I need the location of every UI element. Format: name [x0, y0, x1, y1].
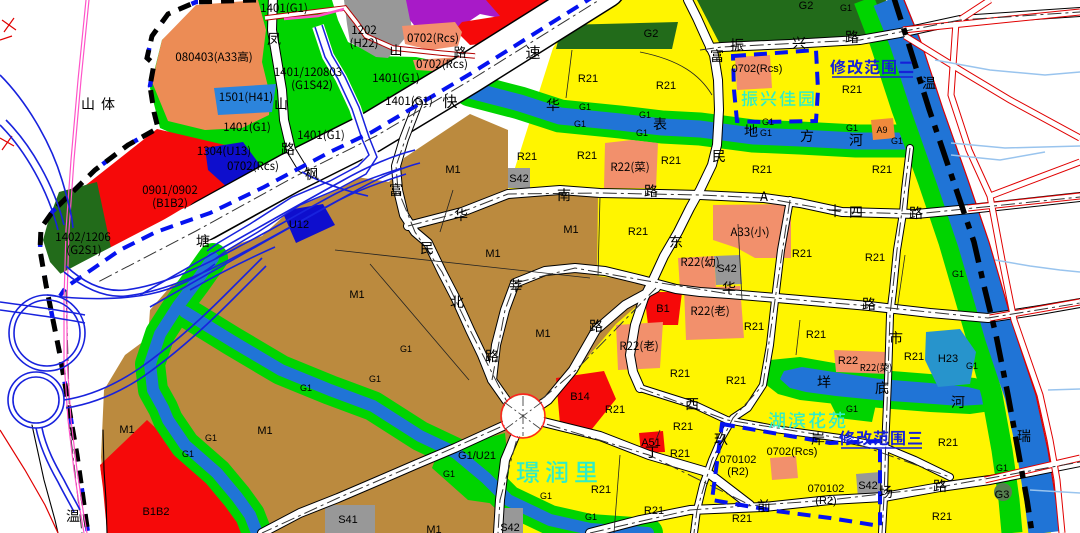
- svg-text:G2: G2: [644, 28, 659, 40]
- svg-text:R21: R21: [670, 368, 690, 380]
- svg-text:H23: H23: [938, 353, 958, 365]
- svg-text:0702(Rcs): 0702(Rcs): [767, 446, 818, 458]
- svg-text:R21: R21: [591, 484, 611, 496]
- svg-text:G1/U21: G1/U21: [458, 450, 496, 462]
- svg-text:M1: M1: [257, 425, 272, 437]
- svg-text:R21: R21: [904, 351, 924, 363]
- svg-text:G1: G1: [205, 433, 217, 443]
- svg-text:R21: R21: [628, 226, 648, 238]
- svg-text:R21: R21: [872, 164, 892, 176]
- svg-text:R21: R21: [578, 73, 598, 85]
- svg-text:0702(Rcs): 0702(Rcs): [732, 63, 783, 75]
- svg-text:070102: 070102: [720, 454, 757, 466]
- svg-text:S42: S42: [500, 522, 520, 533]
- svg-text:R21: R21: [577, 150, 597, 162]
- svg-text:(R2): (R2): [815, 495, 836, 507]
- svg-text:R21: R21: [644, 505, 664, 517]
- svg-text:R21: R21: [792, 248, 812, 260]
- svg-text:B1: B1: [656, 303, 669, 315]
- svg-text:G1: G1: [369, 374, 381, 384]
- svg-text:R21: R21: [932, 511, 952, 523]
- svg-text:G1: G1: [966, 361, 978, 371]
- svg-text:B1B2: B1B2: [143, 506, 170, 518]
- svg-text:G1: G1: [846, 123, 858, 133]
- svg-text:G1: G1: [846, 404, 858, 414]
- svg-text:R21: R21: [726, 375, 746, 387]
- svg-text:R21: R21: [673, 421, 693, 433]
- svg-text:(R2): (R2): [727, 466, 748, 478]
- svg-text:M1: M1: [535, 328, 550, 340]
- svg-text:U12: U12: [289, 219, 309, 231]
- svg-text:G1: G1: [540, 491, 552, 501]
- svg-text:R21: R21: [938, 437, 958, 449]
- svg-text:S41: S41: [338, 514, 358, 526]
- svg-text:M1: M1: [119, 424, 134, 436]
- svg-text:G1: G1: [400, 344, 412, 354]
- svg-text:R21: R21: [605, 404, 625, 416]
- svg-text:G1: G1: [639, 110, 651, 120]
- svg-text:G1: G1: [300, 383, 312, 393]
- svg-text:070102: 070102: [808, 483, 845, 495]
- svg-text:R21: R21: [670, 448, 690, 460]
- svg-text:G1: G1: [182, 449, 194, 459]
- svg-text:R21: R21: [842, 84, 862, 96]
- svg-text:G1: G1: [891, 136, 903, 146]
- svg-text:R21: R21: [732, 513, 752, 525]
- svg-text:R21: R21: [806, 329, 826, 341]
- svg-text:M1: M1: [349, 289, 364, 301]
- svg-text:G1: G1: [443, 469, 455, 479]
- svg-text:A9: A9: [876, 125, 887, 135]
- svg-text:R22: R22: [838, 355, 858, 367]
- svg-text:R21: R21: [865, 252, 885, 264]
- svg-text:S42: S42: [858, 480, 878, 492]
- svg-text:G1: G1: [574, 119, 586, 129]
- svg-text:G1: G1: [636, 128, 648, 138]
- svg-text:B14: B14: [570, 391, 590, 403]
- svg-text:M1: M1: [426, 524, 441, 533]
- svg-text:G1: G1: [840, 3, 852, 13]
- svg-text:G3: G3: [995, 489, 1010, 501]
- svg-text:G2: G2: [799, 0, 814, 12]
- svg-text:G1: G1: [579, 102, 591, 112]
- svg-text:R21: R21: [752, 164, 772, 176]
- svg-text:S42: S42: [717, 263, 737, 275]
- svg-text:R21: R21: [517, 151, 537, 163]
- svg-text:R21: R21: [744, 321, 764, 333]
- svg-text:R21: R21: [661, 155, 681, 167]
- svg-text:G1: G1: [952, 269, 964, 279]
- svg-text:M1: M1: [485, 248, 500, 260]
- svg-text:M1: M1: [445, 164, 460, 176]
- svg-text:M1: M1: [563, 224, 578, 236]
- svg-text:S42: S42: [509, 173, 529, 185]
- svg-text:G1: G1: [760, 128, 772, 138]
- svg-text:R21: R21: [656, 80, 676, 92]
- svg-text:G1: G1: [996, 463, 1008, 473]
- svg-text:G1: G1: [585, 512, 597, 522]
- svg-text:G1: G1: [762, 117, 774, 127]
